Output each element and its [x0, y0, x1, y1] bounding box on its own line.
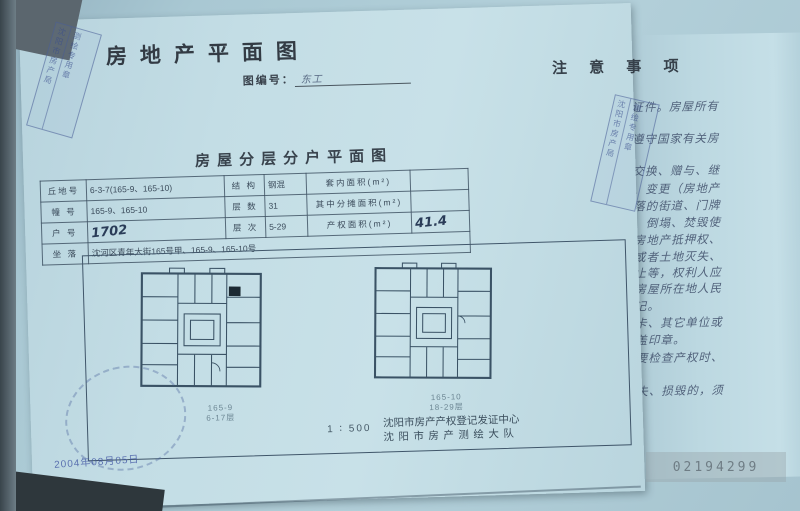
- unit-no-handwritten-value: 1702: [91, 222, 128, 241]
- notice-text-line: 、变更（房地产: [633, 180, 721, 198]
- notice-text-line: 要检查产权时、: [636, 349, 724, 367]
- floor-plan-right: [367, 256, 502, 391]
- floor-level-value: 5-29: [265, 215, 308, 237]
- notice-text-line: 失、损毁的，须: [636, 382, 724, 400]
- plan-page: 房地产平面图 图编号：东工 房屋分层分户平面图 丘地号 6-3-7(165-9、…: [19, 3, 645, 509]
- drawing-number-value: 东工: [294, 68, 410, 87]
- floor-plan-subtitle: 房屋分层分户平面图: [195, 144, 394, 171]
- right-plan-caption: 165-10 18-29层: [386, 391, 507, 415]
- serial-number: 02194299: [673, 460, 760, 475]
- drawing-number-label: 图编号：: [243, 74, 295, 88]
- notice-text-line: 房屋所在地人民: [634, 280, 722, 298]
- notice-page: 证件。房屋所有 遵守国家有关房 交换、赠与、继 、变更（房地产 落的街道、门牌 …: [622, 32, 800, 479]
- page-title: 房地产平面图: [106, 35, 311, 71]
- notice-text-line: 盖印章。: [635, 332, 685, 349]
- ownership-area-handwritten-value: 41.4: [414, 213, 447, 231]
- floor-plan-right-svg: [367, 256, 502, 391]
- map-scale: 1 ∶ 500: [327, 423, 372, 435]
- drawing-number: 图编号：东工: [243, 68, 411, 89]
- inner-area-value: [410, 168, 469, 191]
- photo-dark-left-edge: [0, 0, 16, 511]
- structure-value: 钢混: [264, 173, 307, 195]
- floor-level-label: 层 次: [225, 216, 266, 238]
- notice-section-title: 注 意 事 项: [552, 55, 688, 78]
- issuing-organizations: 沈阳市房产产权登记发证中心 沈阳市房产测绘大队: [383, 413, 520, 445]
- notice-text-line: 、倒塌、焚毁使: [633, 214, 721, 232]
- parcel-no-label: 丘地号: [40, 180, 87, 202]
- structure-label: 结 构: [224, 174, 265, 196]
- notice-text-line: 房地产抵押权、: [634, 231, 722, 249]
- storeys-label: 层 数: [225, 195, 266, 217]
- storeys-value: 31: [265, 194, 308, 216]
- serial-number-band: 02194299: [646, 452, 786, 482]
- building-no-label: 幢 号: [41, 201, 88, 223]
- shared-area-value: [411, 189, 470, 212]
- notice-text-line: 或者土地灭失、: [634, 248, 722, 266]
- notice-text-line: 卡、其它单位或: [635, 314, 723, 332]
- unit-marker: [229, 287, 241, 297]
- notice-text-line: 落的街道、门牌: [633, 197, 721, 215]
- unit-no-label: 户 号: [41, 222, 88, 244]
- notice-text-line: 止等，权利人应: [634, 264, 722, 282]
- scanned-document-photo: 证件。房屋所有 遵守国家有关房 交换、赠与、继 、变更（房地产 落的街道、门牌 …: [0, 0, 800, 511]
